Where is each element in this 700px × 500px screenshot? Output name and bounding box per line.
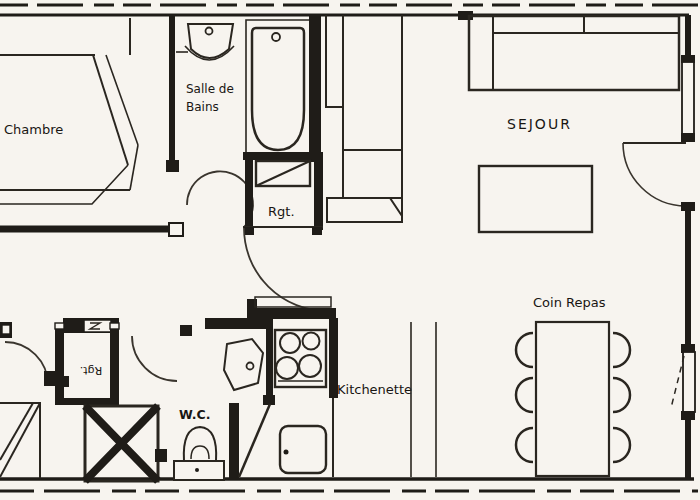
chair bbox=[516, 428, 533, 462]
toilet-cistern bbox=[174, 461, 224, 480]
chair bbox=[516, 378, 533, 412]
wc-door-leaf bbox=[239, 404, 270, 477]
bathtub bbox=[246, 20, 309, 158]
salle-de-bains-label-line1: Salle de bbox=[186, 82, 234, 96]
closet-rangement-entree: Rgt. bbox=[55, 318, 119, 405]
sejour-label: SEJOUR bbox=[507, 116, 572, 132]
chambre-door-jamb bbox=[166, 160, 179, 172]
storage-shelf bbox=[256, 161, 310, 186]
bed-fold-line bbox=[106, 55, 138, 145]
wc-room-door-swing-arc bbox=[132, 336, 177, 381]
corner-basin bbox=[224, 339, 263, 390]
entry-door-swing-arc bbox=[5, 342, 48, 385]
chambre-label: Chambre bbox=[4, 122, 63, 137]
stairs bbox=[0, 403, 40, 478]
salle-de-bains-label-line2: Bains bbox=[186, 100, 219, 114]
closet-label-box bbox=[84, 320, 111, 332]
room-wc: W.C. bbox=[132, 325, 275, 480]
room-coin-repas: Coin Repas bbox=[516, 295, 630, 476]
bathroom-east-wall bbox=[309, 15, 321, 162]
sejour-table bbox=[479, 166, 592, 232]
wc-label: W.C. bbox=[179, 407, 210, 422]
dining-window bbox=[671, 344, 695, 420]
balcony-door-swing-arc bbox=[623, 143, 686, 206]
chair bbox=[613, 333, 630, 367]
sink-drain bbox=[284, 450, 289, 455]
floor-plan: Chambre Salle de Bains Rgt. bbox=[0, 0, 700, 500]
chair bbox=[516, 333, 533, 367]
floor-plan-drawing: Chambre Salle de Bains Rgt. bbox=[0, 0, 700, 500]
kitchen-sink bbox=[280, 426, 326, 473]
burner bbox=[299, 355, 321, 377]
kitchenette-label: Kitchenette bbox=[337, 382, 412, 397]
burner bbox=[276, 357, 298, 379]
burner bbox=[303, 333, 320, 350]
chambre-bathroom-wall bbox=[169, 15, 175, 167]
chambre-door-swing-arc bbox=[187, 171, 253, 227]
rangement-entree-label: Rgt. bbox=[80, 364, 102, 377]
right-wall-lower bbox=[685, 420, 691, 479]
stove bbox=[275, 330, 326, 387]
kitchen-counter-edge bbox=[255, 297, 331, 307]
bed bbox=[0, 18, 138, 204]
chair bbox=[613, 428, 630, 462]
room-rangement: Rgt. bbox=[243, 152, 323, 235]
room-salle-de-bains: Salle de Bains bbox=[176, 15, 321, 162]
bed-fold-line bbox=[93, 55, 128, 165]
window-open-dashed-line bbox=[671, 356, 684, 408]
entry-zone: Rgt. bbox=[0, 318, 167, 481]
chair bbox=[613, 378, 630, 412]
sofa-bed bbox=[469, 16, 679, 90]
x-mark bbox=[85, 406, 158, 481]
room-sejour: SEJOUR bbox=[469, 16, 679, 232]
sejour-window bbox=[681, 55, 695, 142]
toilet bbox=[174, 427, 224, 480]
hall-cabinet bbox=[343, 150, 402, 198]
washbasin bbox=[185, 24, 234, 60]
right-wall-middle bbox=[685, 211, 691, 352]
right-wall-upper bbox=[685, 15, 691, 62]
rangement-label: Rgt. bbox=[268, 204, 295, 219]
hall-door-swing-arc bbox=[244, 228, 327, 311]
hall-cabinet-beveled bbox=[327, 198, 402, 222]
dining-table bbox=[536, 322, 609, 476]
burner bbox=[280, 333, 300, 353]
crossed-out-shaft bbox=[85, 406, 167, 481]
balcony-door bbox=[623, 143, 695, 211]
coin-repas-label: Coin Repas bbox=[533, 295, 606, 310]
